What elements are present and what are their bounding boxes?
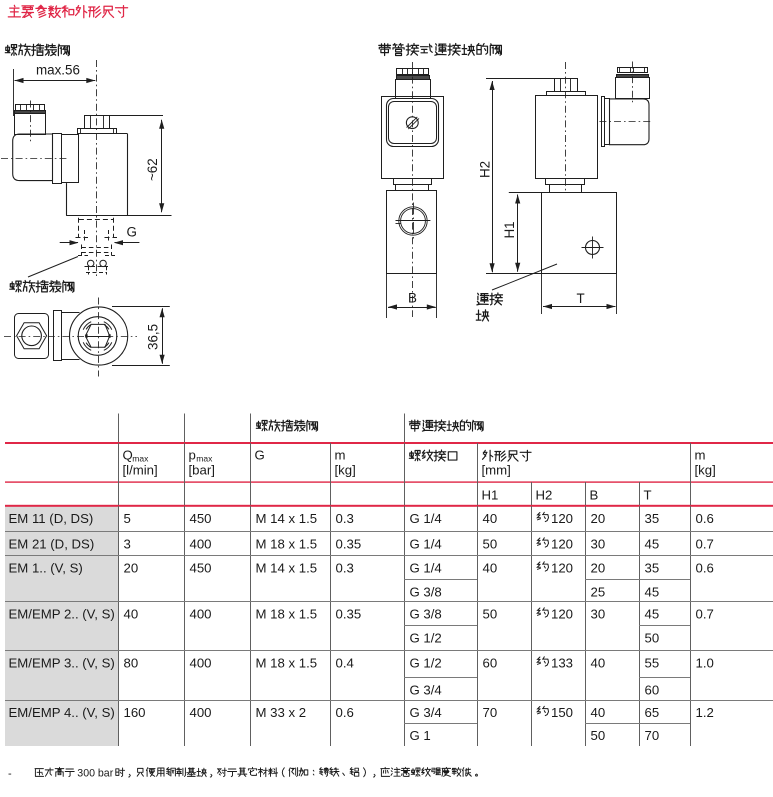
svg-text:30: 30	[591, 537, 606, 552]
svg-text:m: m	[335, 448, 346, 463]
svg-text:133: 133	[551, 656, 573, 671]
svg-text:70: 70	[645, 728, 660, 743]
svg-text:G 1/4: G 1/4	[410, 511, 442, 526]
svg-text:40: 40	[124, 607, 139, 622]
svg-text:40: 40	[591, 705, 606, 720]
svg-text:G: G	[127, 225, 137, 240]
svg-text:B: B	[408, 291, 417, 306]
svg-text:0.6: 0.6	[696, 511, 714, 526]
svg-text:160: 160	[124, 705, 146, 720]
svg-text:[mm]: [mm]	[482, 463, 511, 478]
svg-text:max.56: max.56	[36, 63, 80, 78]
svg-text:M 14 x 1.5: M 14 x 1.5	[256, 511, 318, 526]
svg-text:450: 450	[190, 561, 212, 576]
svg-text:70: 70	[483, 705, 498, 720]
svg-text:0.35: 0.35	[336, 537, 362, 552]
svg-text:Q: Q	[123, 448, 133, 463]
svg-text:50: 50	[483, 537, 498, 552]
svg-text:400: 400	[190, 607, 212, 622]
svg-text:0.7: 0.7	[696, 607, 714, 622]
svg-text:G 3/8: G 3/8	[410, 585, 442, 600]
svg-text:[kg]: [kg]	[695, 463, 716, 478]
svg-text:G 3/4: G 3/4	[410, 705, 442, 720]
svg-text:40: 40	[591, 656, 606, 671]
svg-text:450: 450	[190, 511, 212, 526]
svg-text:0.7: 0.7	[696, 537, 714, 552]
svg-text:H1: H1	[482, 488, 499, 503]
svg-text:35: 35	[645, 511, 660, 526]
svg-text:M 18 x 1.5: M 18 x 1.5	[256, 656, 318, 671]
svg-text:50: 50	[591, 728, 606, 743]
svg-text:0.3: 0.3	[336, 561, 354, 576]
svg-text:60: 60	[483, 656, 498, 671]
svg-text:H2: H2	[478, 161, 493, 178]
svg-text:1.0: 1.0	[696, 656, 714, 671]
svg-text:120: 120	[551, 537, 573, 552]
svg-text:120: 120	[551, 511, 573, 526]
svg-text:300 bar: 300 bar	[77, 767, 113, 779]
svg-text:0.4: 0.4	[336, 656, 354, 671]
svg-text:m: m	[695, 448, 706, 463]
svg-text:M 18 x 1.5: M 18 x 1.5	[256, 607, 318, 622]
svg-text:45: 45	[645, 585, 660, 600]
svg-text:20: 20	[591, 561, 606, 576]
svg-text:35: 35	[645, 561, 660, 576]
svg-text:50: 50	[645, 631, 660, 646]
svg-text:H1: H1	[502, 221, 517, 238]
svg-text:EM 1.. (V, S): EM 1.. (V, S)	[9, 561, 83, 576]
svg-text:[kg]: [kg]	[335, 463, 356, 478]
svg-text:0.3: 0.3	[336, 511, 354, 526]
svg-text:T: T	[577, 291, 585, 306]
svg-text:65: 65	[645, 705, 660, 720]
svg-text:5: 5	[124, 511, 131, 526]
svg-text:-: -	[8, 768, 12, 780]
svg-text:50: 50	[483, 607, 498, 622]
svg-text:1.2: 1.2	[696, 705, 714, 720]
svg-text:G 3/4: G 3/4	[410, 683, 442, 698]
svg-text:T: T	[644, 488, 652, 503]
svg-text:400: 400	[190, 537, 212, 552]
svg-text:30: 30	[591, 607, 606, 622]
svg-text:400: 400	[190, 656, 212, 671]
svg-text:45: 45	[645, 537, 660, 552]
svg-text:G 1/4: G 1/4	[410, 561, 442, 576]
svg-text:B: B	[590, 488, 599, 503]
svg-text:G: G	[255, 448, 265, 463]
svg-text:[l/min]: [l/min]	[123, 463, 158, 478]
svg-text:0.6: 0.6	[696, 561, 714, 576]
svg-text:EM/EMP 3.. (V, S): EM/EMP 3.. (V, S)	[9, 656, 115, 671]
svg-text:EM/EMP 2.. (V, S): EM/EMP 2.. (V, S)	[9, 607, 115, 622]
svg-text:25: 25	[591, 585, 606, 600]
svg-text:EM 11 (D, DS): EM 11 (D, DS)	[9, 511, 94, 526]
svg-text:55: 55	[645, 656, 660, 671]
svg-text:M 14 x 1.5: M 14 x 1.5	[256, 561, 318, 576]
svg-text:120: 120	[551, 607, 573, 622]
svg-text:p: p	[189, 448, 196, 463]
svg-text:80: 80	[124, 656, 139, 671]
svg-text:400: 400	[190, 705, 212, 720]
svg-text:36,5: 36,5	[145, 324, 160, 350]
svg-text:20: 20	[591, 511, 606, 526]
svg-text:EM 21 (D, DS): EM 21 (D, DS)	[9, 537, 95, 552]
svg-text:3: 3	[124, 537, 131, 552]
svg-text:[bar]: [bar]	[189, 463, 215, 478]
svg-text:~62: ~62	[145, 158, 160, 181]
svg-text:G 1/2: G 1/2	[410, 656, 442, 671]
svg-text:H2: H2	[536, 488, 553, 503]
svg-text:40: 40	[483, 561, 498, 576]
svg-text:0.35: 0.35	[336, 607, 362, 622]
svg-text:G 1: G 1	[410, 728, 431, 743]
svg-text:G 3/8: G 3/8	[410, 607, 442, 622]
svg-text:M 33 x 2: M 33 x 2	[256, 705, 307, 720]
svg-text:M 18 x 1.5: M 18 x 1.5	[256, 537, 318, 552]
svg-text:60: 60	[645, 683, 660, 698]
svg-text:0.6: 0.6	[336, 705, 354, 720]
svg-text:150: 150	[551, 705, 573, 720]
svg-text:20: 20	[124, 561, 139, 576]
svg-text:120: 120	[551, 561, 573, 576]
svg-text:G 1/2: G 1/2	[410, 631, 442, 646]
svg-text:40: 40	[483, 511, 498, 526]
svg-text:EM/EMP 4.. (V, S): EM/EMP 4.. (V, S)	[9, 705, 115, 720]
svg-text:G 1/4: G 1/4	[410, 537, 442, 552]
svg-text:45: 45	[645, 607, 660, 622]
